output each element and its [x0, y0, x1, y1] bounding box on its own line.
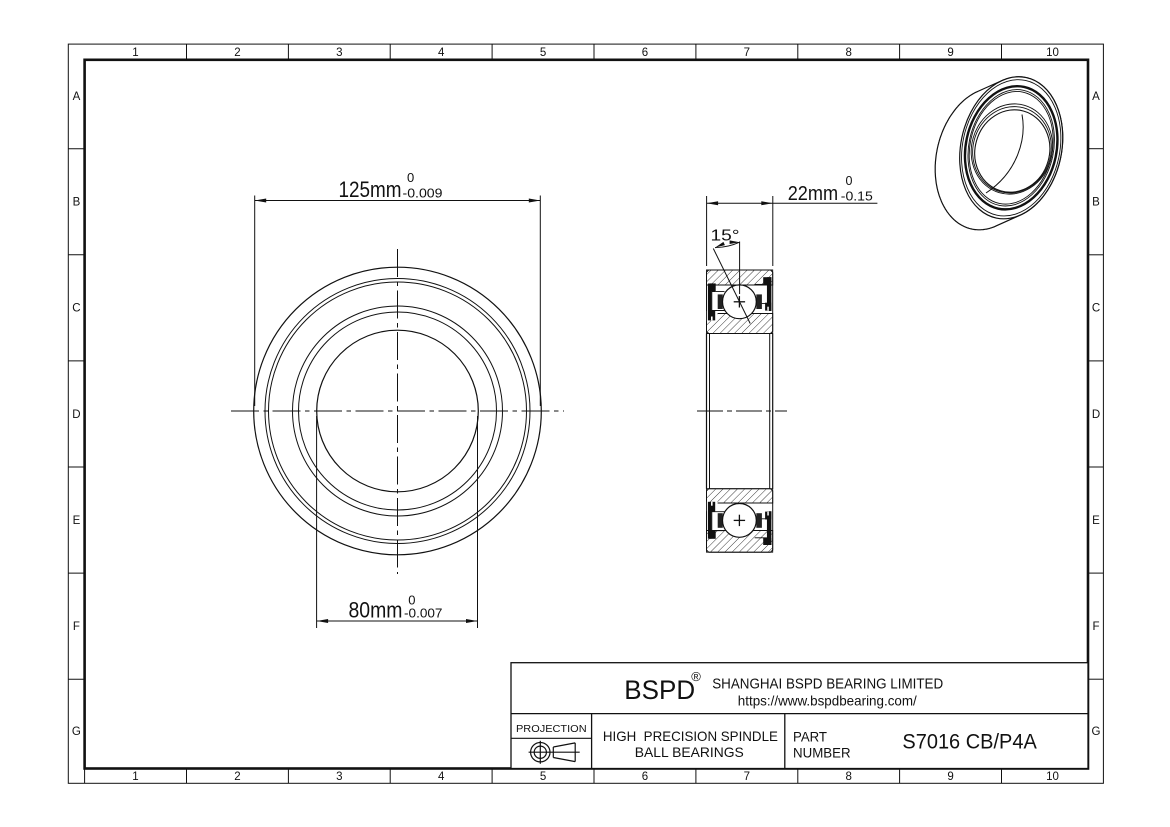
svg-text:125mm: 125mm — [339, 177, 402, 202]
svg-text:5: 5 — [540, 47, 546, 59]
svg-text:7: 7 — [744, 47, 750, 59]
svg-text:D: D — [72, 409, 80, 421]
svg-text:SHANGHAI BSPD BEARING LIMITED: SHANGHAI BSPD BEARING LIMITED — [712, 676, 943, 693]
svg-text:-0.009: -0.009 — [403, 185, 443, 200]
svg-text:E: E — [1092, 515, 1100, 527]
svg-text:C: C — [72, 303, 80, 315]
svg-text:BSPD: BSPD — [624, 675, 695, 705]
svg-text:4: 4 — [438, 47, 445, 59]
svg-text:10: 10 — [1046, 47, 1059, 59]
svg-text:G: G — [1092, 726, 1101, 738]
svg-text:F: F — [1092, 621, 1099, 633]
svg-text:C: C — [1092, 303, 1100, 315]
svg-text:6: 6 — [642, 771, 648, 783]
svg-text:B: B — [1092, 197, 1100, 209]
svg-text:8: 8 — [845, 47, 851, 59]
svg-text:A: A — [1092, 91, 1100, 103]
svg-text:G: G — [72, 726, 81, 738]
svg-text:B: B — [73, 197, 81, 209]
svg-text:S7016 CB/P4A: S7016 CB/P4A — [902, 730, 1037, 754]
svg-text:2: 2 — [234, 771, 240, 783]
svg-text:4: 4 — [438, 771, 445, 783]
svg-text:1: 1 — [132, 47, 138, 59]
svg-text:HIGH PRECISION SPINDLE: HIGH PRECISION SPINDLE — [603, 728, 778, 744]
svg-text:®: ® — [691, 669, 701, 684]
svg-text:80mm: 80mm — [349, 598, 403, 623]
svg-text:F: F — [73, 621, 80, 633]
svg-text:-0.007: -0.007 — [404, 606, 443, 621]
svg-text:7: 7 — [744, 771, 750, 783]
svg-text:E: E — [73, 515, 81, 527]
svg-text:3: 3 — [336, 47, 342, 59]
svg-text:22mm: 22mm — [788, 183, 838, 205]
svg-text:D: D — [1092, 409, 1100, 421]
svg-text:PART: PART — [793, 729, 827, 745]
svg-text:9: 9 — [947, 47, 953, 59]
svg-text:0: 0 — [407, 170, 414, 185]
svg-text:-0.15: -0.15 — [841, 189, 873, 203]
svg-text:3: 3 — [336, 771, 342, 783]
svg-text:0: 0 — [846, 174, 853, 188]
svg-text:9: 9 — [947, 771, 953, 783]
svg-text:6: 6 — [642, 47, 648, 59]
svg-text:5: 5 — [540, 771, 546, 783]
svg-text:15°: 15° — [711, 228, 740, 245]
svg-text:https://www.bspdbearing.com/: https://www.bspdbearing.com/ — [738, 693, 917, 709]
svg-text:10: 10 — [1046, 771, 1059, 783]
svg-text:8: 8 — [845, 771, 851, 783]
svg-text:2: 2 — [234, 47, 240, 59]
svg-text:A: A — [73, 91, 81, 103]
svg-text:1: 1 — [132, 771, 138, 783]
svg-text:PROJECTION: PROJECTION — [516, 723, 587, 735]
svg-text:NUMBER: NUMBER — [793, 745, 851, 761]
svg-text:BALL BEARINGS: BALL BEARINGS — [635, 744, 744, 760]
